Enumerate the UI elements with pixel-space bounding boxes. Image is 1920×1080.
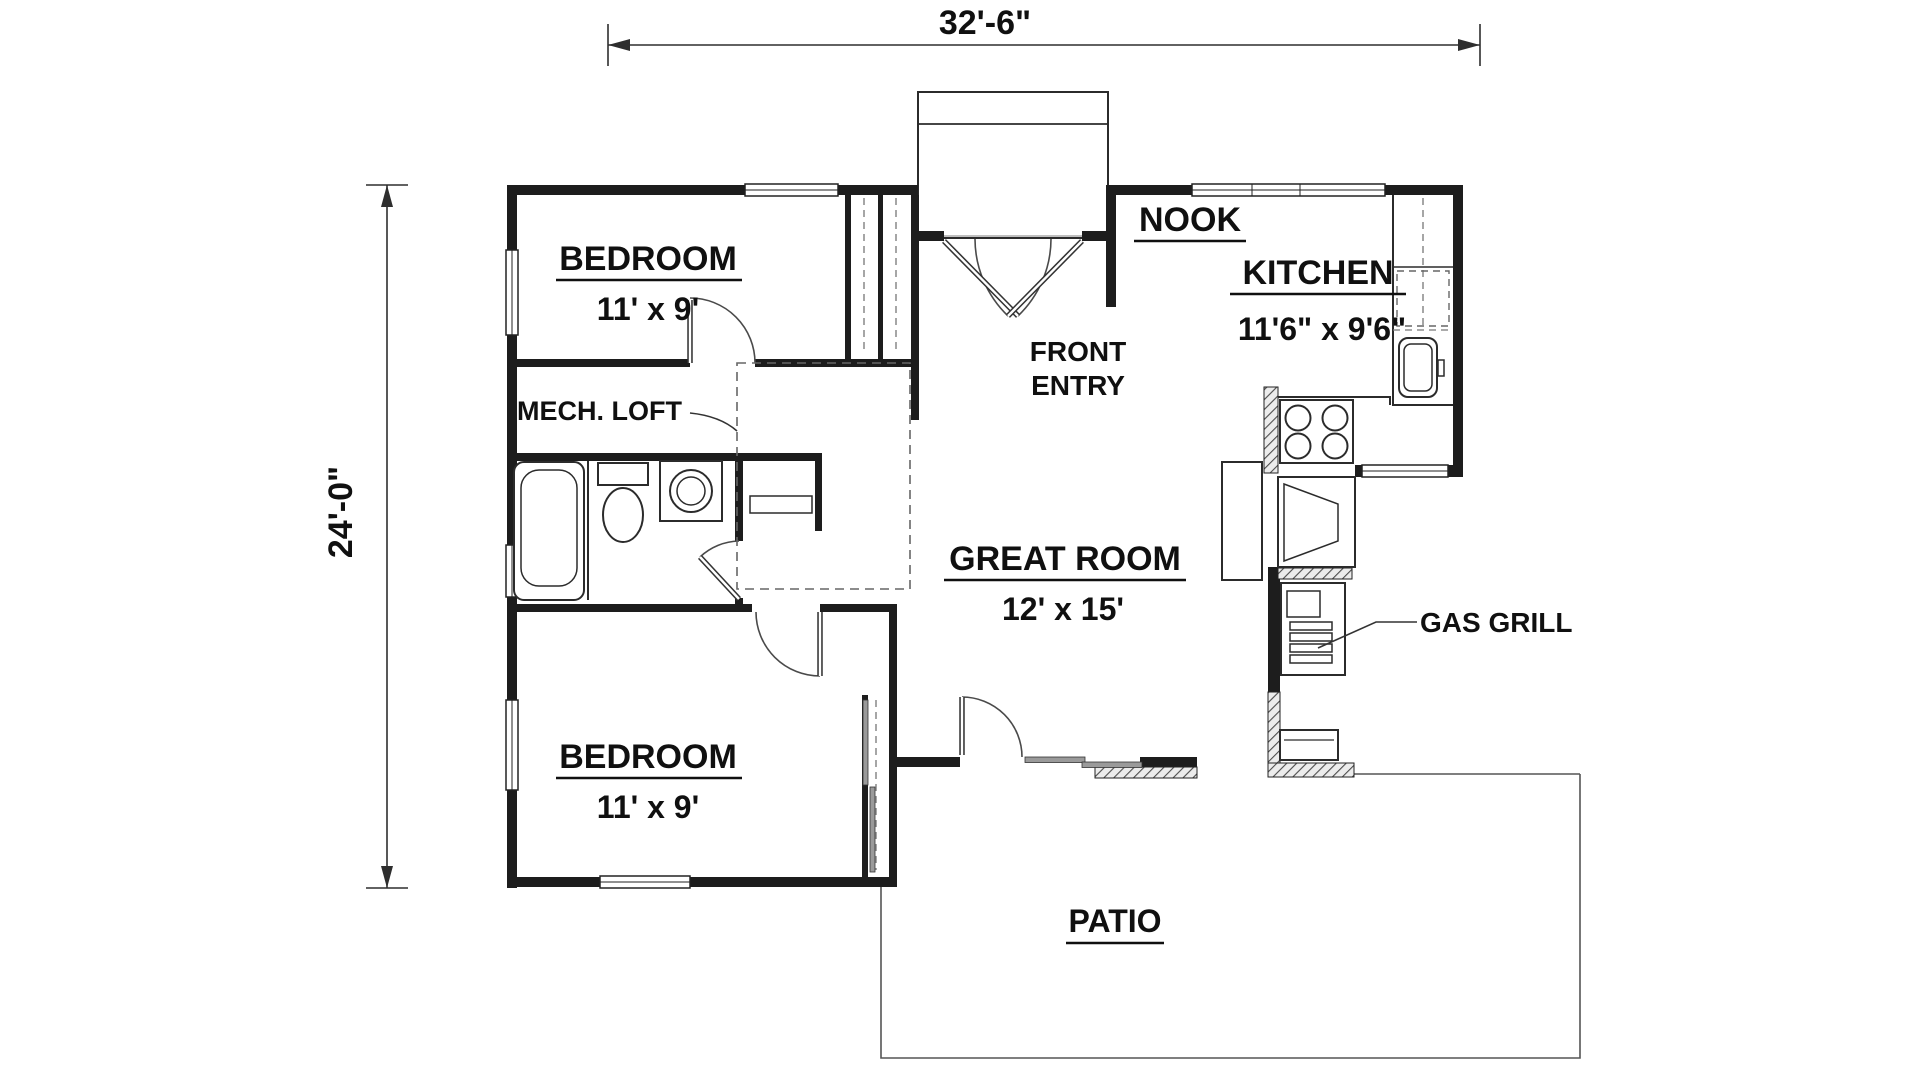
burner-2 [1323, 406, 1348, 431]
bedroom1-bottom-wall-a [507, 359, 690, 367]
sliding-door-panel-2 [1082, 762, 1142, 768]
front-entry-label-group: FRONT ENTRY [1030, 336, 1126, 401]
bathroom-door-arc [700, 541, 739, 557]
great-room-label-group: GREAT ROOM 12' x 15' [944, 540, 1186, 627]
grill-column-left-wall [1268, 567, 1280, 692]
nook-left-wall [1106, 195, 1116, 307]
arrow-down-icon [381, 866, 393, 888]
great-room-size: 12' x 15' [1002, 591, 1124, 627]
closet-partition-wall [878, 195, 883, 359]
window-bedroom1-top [745, 184, 838, 196]
bathroom-door [700, 541, 739, 599]
kitchen-label: KITCHEN [1242, 254, 1393, 292]
patio-area [881, 774, 1580, 1058]
hatch-wall-above-grill [1278, 568, 1352, 579]
bedroom2-right-wall [889, 612, 897, 885]
top-dimension: 32'-6" [608, 4, 1480, 66]
nook-label: NOOK [1139, 201, 1241, 239]
bathroom-top-wall [507, 453, 822, 461]
great-room-label: GREAT ROOM [949, 540, 1181, 578]
height-dimension-label: 24'-0" [322, 466, 360, 558]
bathroom-door-leaf-core [700, 557, 739, 599]
mech-loft-label-group: MECH. LOFT [517, 396, 737, 431]
mech-loft-leader-line [690, 413, 737, 431]
right-exterior-wall [1453, 185, 1463, 477]
fireplace [1278, 477, 1355, 567]
bottom-wall-bedroom [507, 877, 897, 887]
patio-label: PATIO [1068, 903, 1161, 939]
patio-label-group: PATIO [1066, 903, 1164, 943]
bedroom1-size: 11' x 9' [597, 291, 699, 327]
grill-column-window [1280, 730, 1338, 760]
washer-drum-inner [677, 477, 705, 505]
width-dimension-label: 32'-6" [939, 4, 1031, 42]
entry-porch [918, 92, 1108, 238]
floor-plan-drawing: 32'-6" 24'-0" [0, 0, 1920, 1080]
hall-bottom-wall-b [820, 604, 897, 612]
arrow-right-icon [1458, 39, 1480, 51]
window-bedroom2-bottom [600, 876, 690, 888]
toilet-bowl [603, 488, 643, 542]
burner-1 [1286, 406, 1311, 431]
patio-outline [881, 774, 1580, 1058]
mech-loft-label: MECH. LOFT [517, 396, 682, 426]
grill-burner-box [1287, 591, 1320, 617]
bedroom1-door-arc [690, 298, 755, 363]
nook-label-group: NOOK [1134, 201, 1246, 241]
bathroom-fixtures [514, 461, 812, 600]
kitchen-label-group: KITCHEN 11'6" x 9'6" [1230, 254, 1406, 347]
kitchen-sink-basin [1404, 344, 1432, 391]
bedroom2-door [756, 612, 820, 676]
greatroom-patio-door [962, 697, 1022, 757]
linen-shelf [750, 496, 812, 513]
grill-slat-1 [1290, 622, 1332, 630]
hatch-strip-patio-edge [1095, 767, 1197, 778]
bedroom2-size: 11' x 9' [597, 789, 699, 825]
window-kitchen-bottom [1362, 465, 1448, 477]
porch-outline [918, 92, 1108, 238]
left-dimension: 24'-0" [322, 185, 408, 888]
burner-4 [1323, 434, 1348, 459]
bedroom2-labels: BEDROOM 11' x 9' [556, 738, 742, 825]
bedroom2-label: BEDROOM [559, 738, 737, 776]
floor-plan-page: 32'-6" 24'-0" [0, 0, 1920, 1080]
bedroom1-labels: BEDROOM 11' x 9' [556, 240, 742, 327]
kitchen-peninsula [1222, 462, 1262, 580]
hatch-wall-below-grill-left [1268, 692, 1280, 765]
bedroom1-door [690, 298, 755, 363]
front-entry-label-line1: FRONT [1030, 336, 1126, 367]
gas-grill [1280, 583, 1345, 760]
hatch-wall-grill-bottom [1268, 763, 1354, 777]
top-wall-left-segment [507, 185, 918, 195]
sliding-door-panel-1 [1025, 757, 1085, 763]
greatroom-bottom-wall-left [889, 757, 960, 767]
window-kitchen-top [1192, 184, 1385, 196]
front-entry-label-line2: ENTRY [1031, 370, 1125, 401]
window-bedroom2-left [506, 700, 518, 790]
grill-slat-4 [1290, 655, 1332, 663]
linen-closet-right-wall [815, 461, 822, 531]
mech-loft-dashed-outline [737, 363, 910, 589]
bathtub-basin [521, 470, 577, 586]
closet-slider-panel-2 [870, 787, 875, 872]
bedroom2-door-arc [756, 612, 820, 676]
arrow-up-icon [381, 185, 393, 207]
closet-slider-panel-1 [863, 700, 868, 785]
entry-door-leaf-left-core [944, 241, 1018, 316]
entry-wall-right-stub [1082, 231, 1108, 241]
sink-faucet [1438, 360, 1444, 376]
hatch-wall-kitchen-left [1264, 387, 1278, 473]
burner-3 [1286, 434, 1311, 459]
bedroom1-label: BEDROOM [559, 240, 737, 278]
toilet-tank [598, 463, 648, 485]
hall-bottom-wall-a [507, 604, 752, 612]
entry-hall-wall [911, 195, 919, 420]
grill-slat-2 [1290, 633, 1332, 641]
bedroom1-right-wall [845, 195, 851, 366]
gas-grill-label: GAS GRILL [1420, 607, 1572, 638]
arrow-left-icon [608, 39, 630, 51]
sliding-glass-door [1025, 757, 1142, 768]
double-entry-door [944, 239, 1082, 316]
entry-door-leaf-right-core [1008, 241, 1082, 316]
greatroom-door-arc [962, 697, 1022, 757]
entry-wall-left-stub [918, 231, 944, 241]
kitchen-size: 11'6" x 9'6" [1238, 311, 1406, 347]
gas-grill-label-group: GAS GRILL [1318, 607, 1572, 648]
window-bedroom1-left [506, 250, 518, 335]
greatroom-bottom-wall-right [1140, 757, 1197, 767]
